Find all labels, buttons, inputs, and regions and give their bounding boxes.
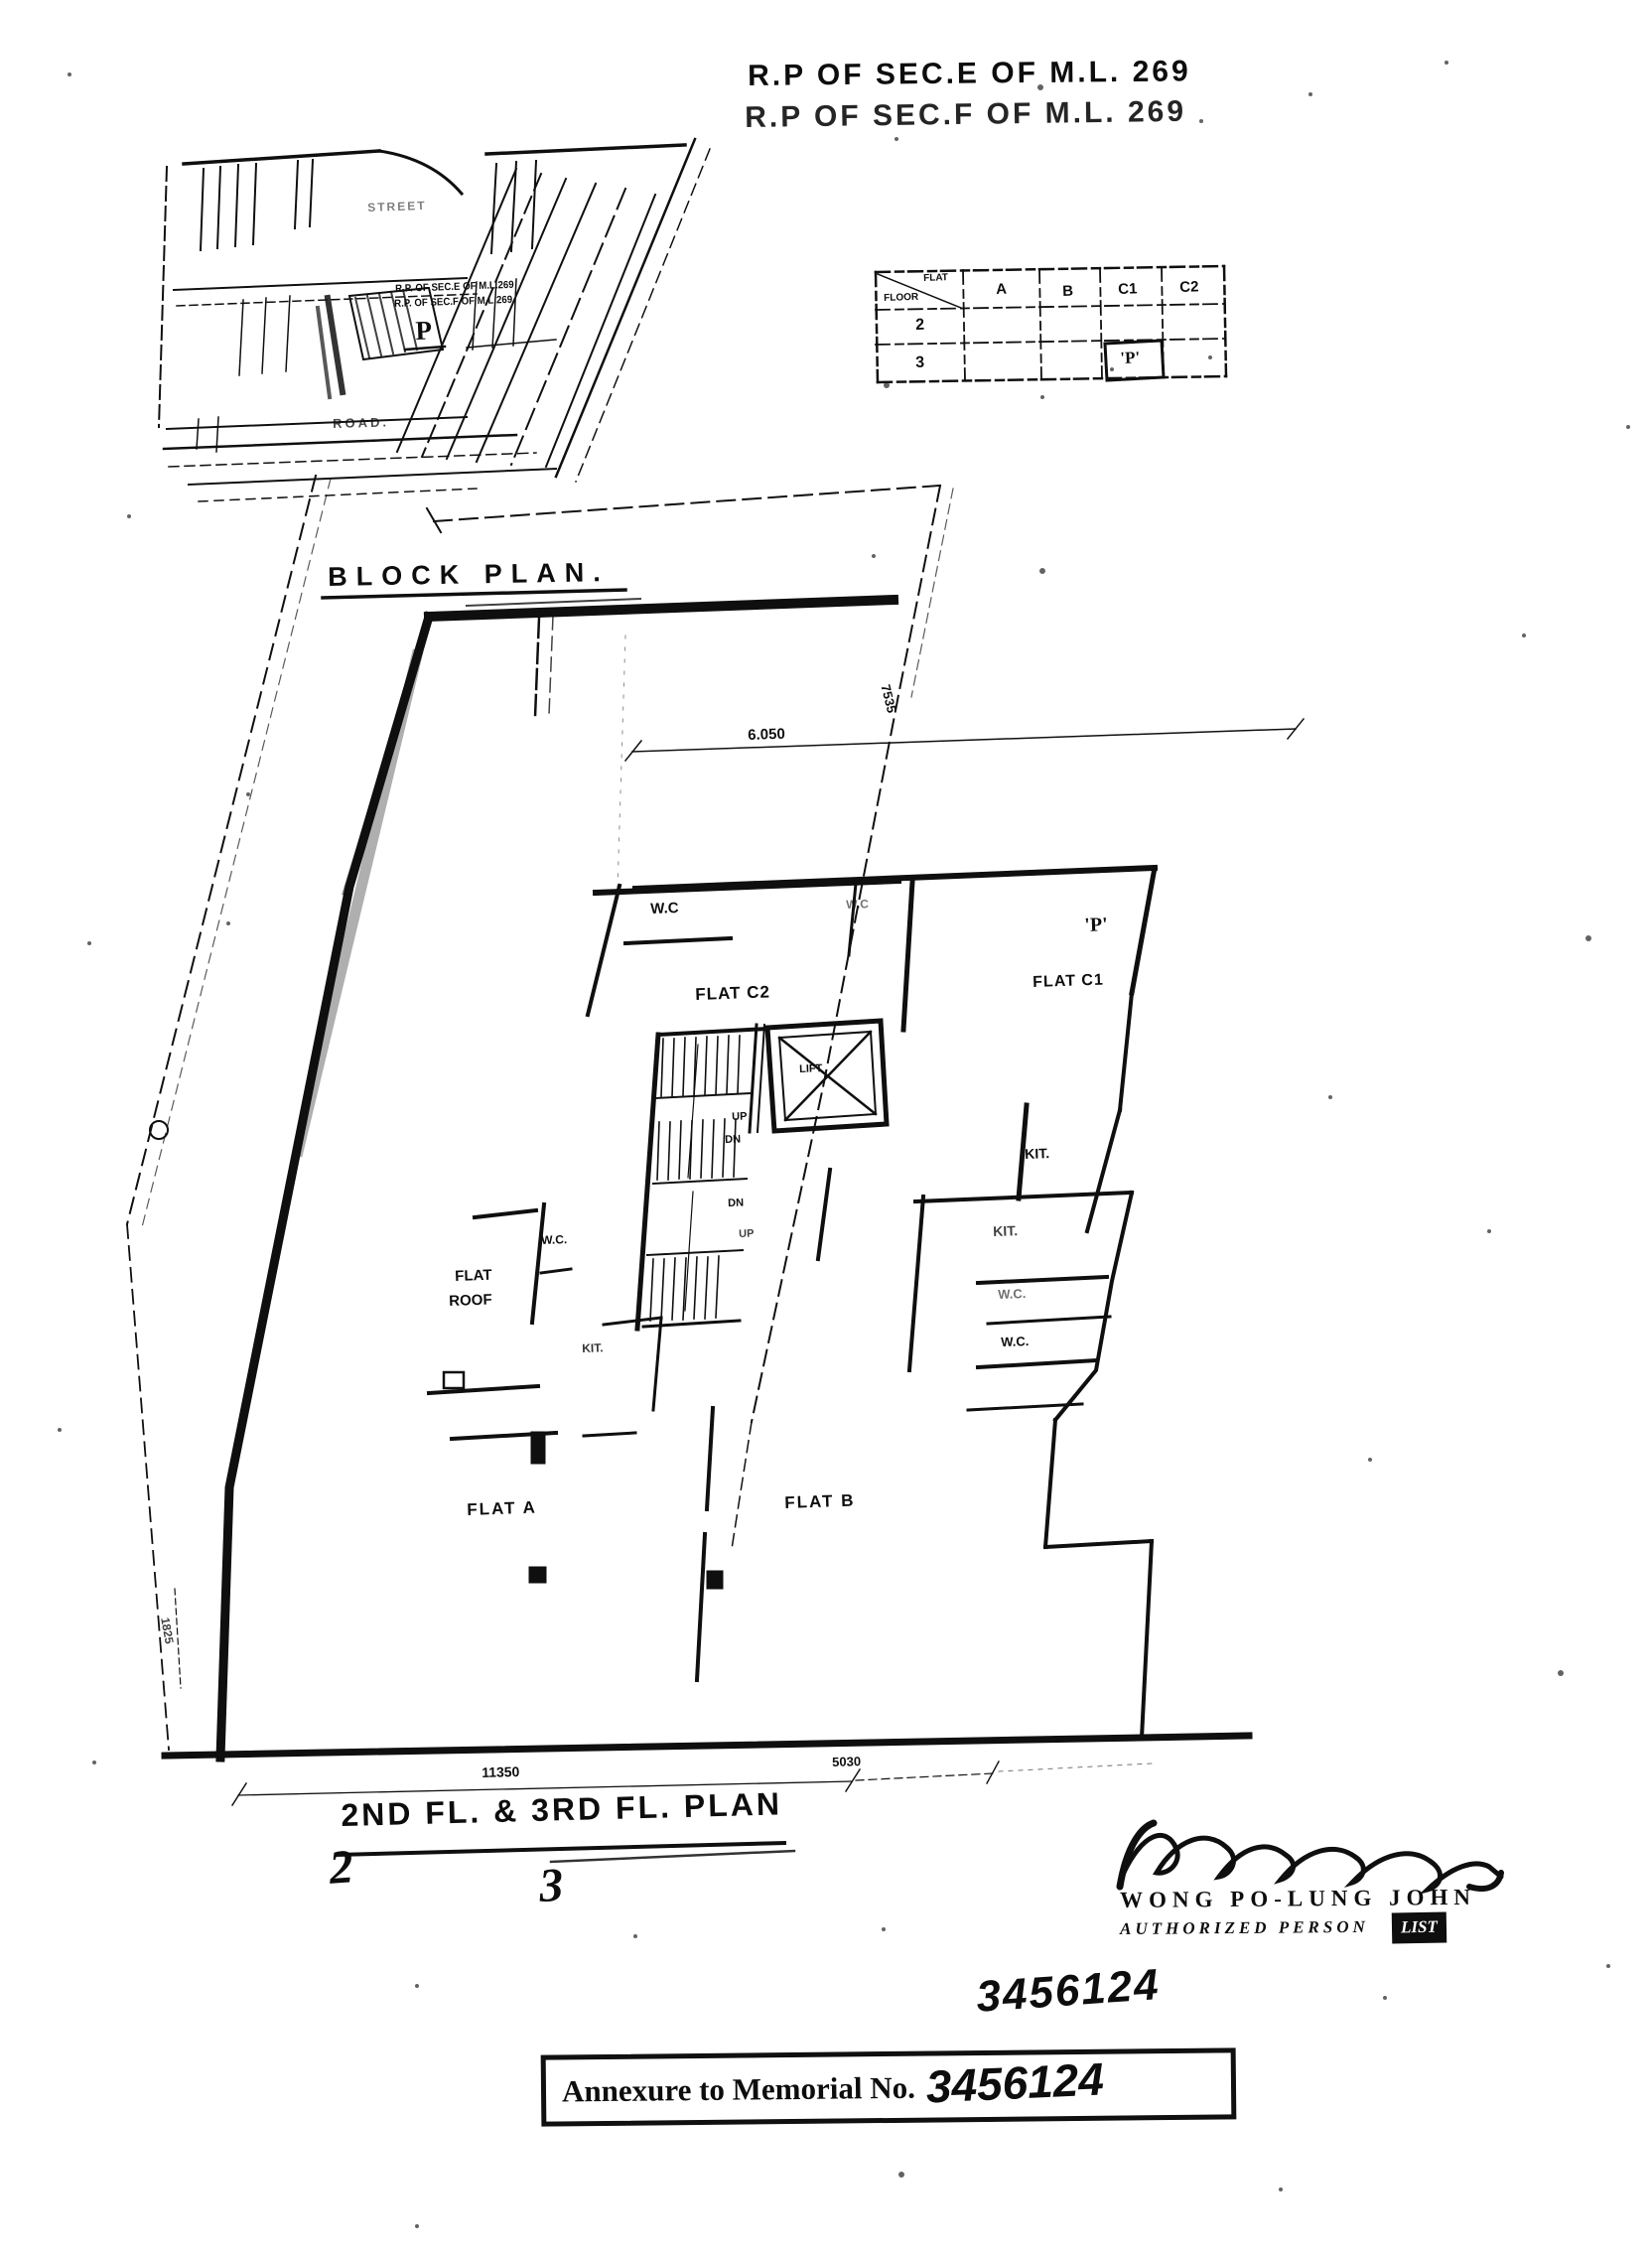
authorized-person-name: WONG PO-LUNG JOHN — [1120, 1886, 1476, 1911]
lot-title-line1: R.P OF SEC.E OF M.L. 269 — [748, 57, 1191, 91]
room-label-wc-mid: W.C — [846, 898, 869, 911]
room-label-flat-a: FLAT A — [467, 1499, 537, 1518]
table-floor-2: 2 — [915, 318, 924, 334]
room-label-p: 'P' — [1084, 915, 1108, 935]
dim-bottom-right: 5030 — [832, 1755, 861, 1768]
room-label-wc-c: W.C. — [541, 1233, 567, 1246]
room-label-flat-roof-2: ROOF — [449, 1292, 492, 1309]
memorial-stamp-number: 3456124 — [925, 2055, 1105, 2109]
room-label-flat-b: FLAT B — [784, 1492, 856, 1511]
memorial-stamp: Annexure to Memorial No. 3456124 — [541, 2047, 1237, 2126]
room-label-kit3: KIT. — [582, 1341, 604, 1354]
dim-top: 6.050 — [748, 727, 785, 743]
table-col-c1: C1 — [1118, 281, 1138, 297]
room-label-wc-r2: W.C. — [1001, 1335, 1030, 1348]
handwritten-3: 3 — [538, 1862, 564, 1910]
room-label-flat-c1: FLAT C1 — [1032, 973, 1104, 991]
authorized-person-list-badge: LIST — [1392, 1912, 1446, 1944]
room-label-lift: LIFT — [799, 1063, 823, 1075]
stair-label-up2: UP — [739, 1228, 755, 1240]
table-col-b: B — [1062, 284, 1073, 299]
room-label-kit2: KIT. — [993, 1223, 1018, 1238]
lot-title-line2: R.P OF SEC.F OF M.L. 269 — [745, 97, 1186, 133]
handwritten-2: 2 — [328, 1843, 354, 1893]
authorized-person-role: AUTHORIZED PERSON — [1120, 1918, 1369, 1937]
room-label-kit1: KIT. — [1025, 1146, 1049, 1161]
block-plan-title: BLOCK PLAN. — [328, 559, 610, 591]
block-plan-street-label: STREET — [367, 200, 427, 213]
signature-scrawl — [1120, 1823, 1501, 1890]
table-corner-flat: FLAT — [923, 273, 948, 284]
table-col-a: A — [996, 282, 1007, 297]
dim-bottom-left: 11350 — [482, 1764, 520, 1779]
memorial-stamp-label: Annexure to Memorial No. — [562, 2071, 915, 2106]
table-p-cell: 'P' — [1120, 349, 1140, 366]
block-plan-map — [159, 139, 710, 606]
block-plan-road-label: ROAD. — [333, 416, 389, 430]
room-label-flat-roof-1: FLAT — [455, 1268, 492, 1284]
table-col-c2: C2 — [1179, 279, 1199, 295]
stair-label-dn2: DN — [728, 1198, 744, 1209]
block-plan-p-marker: P — [415, 317, 432, 345]
room-label-wc-r1: W.C. — [998, 1287, 1027, 1301]
table-corner-floor: FLOOR — [884, 293, 918, 304]
table-floor-3: 3 — [915, 355, 924, 371]
scanned-plan-page: R.P OF SEC.E OF M.L. 269 R.P OF SEC.F OF… — [0, 0, 1652, 2255]
floor-plan-walls — [127, 476, 1304, 1862]
room-label-flat-c2: FLAT C2 — [695, 983, 770, 1003]
room-label-wc-c2: W.C — [650, 901, 679, 916]
stair-label-up1: UP — [732, 1111, 748, 1123]
stair-label-dn1: DN — [725, 1134, 741, 1146]
